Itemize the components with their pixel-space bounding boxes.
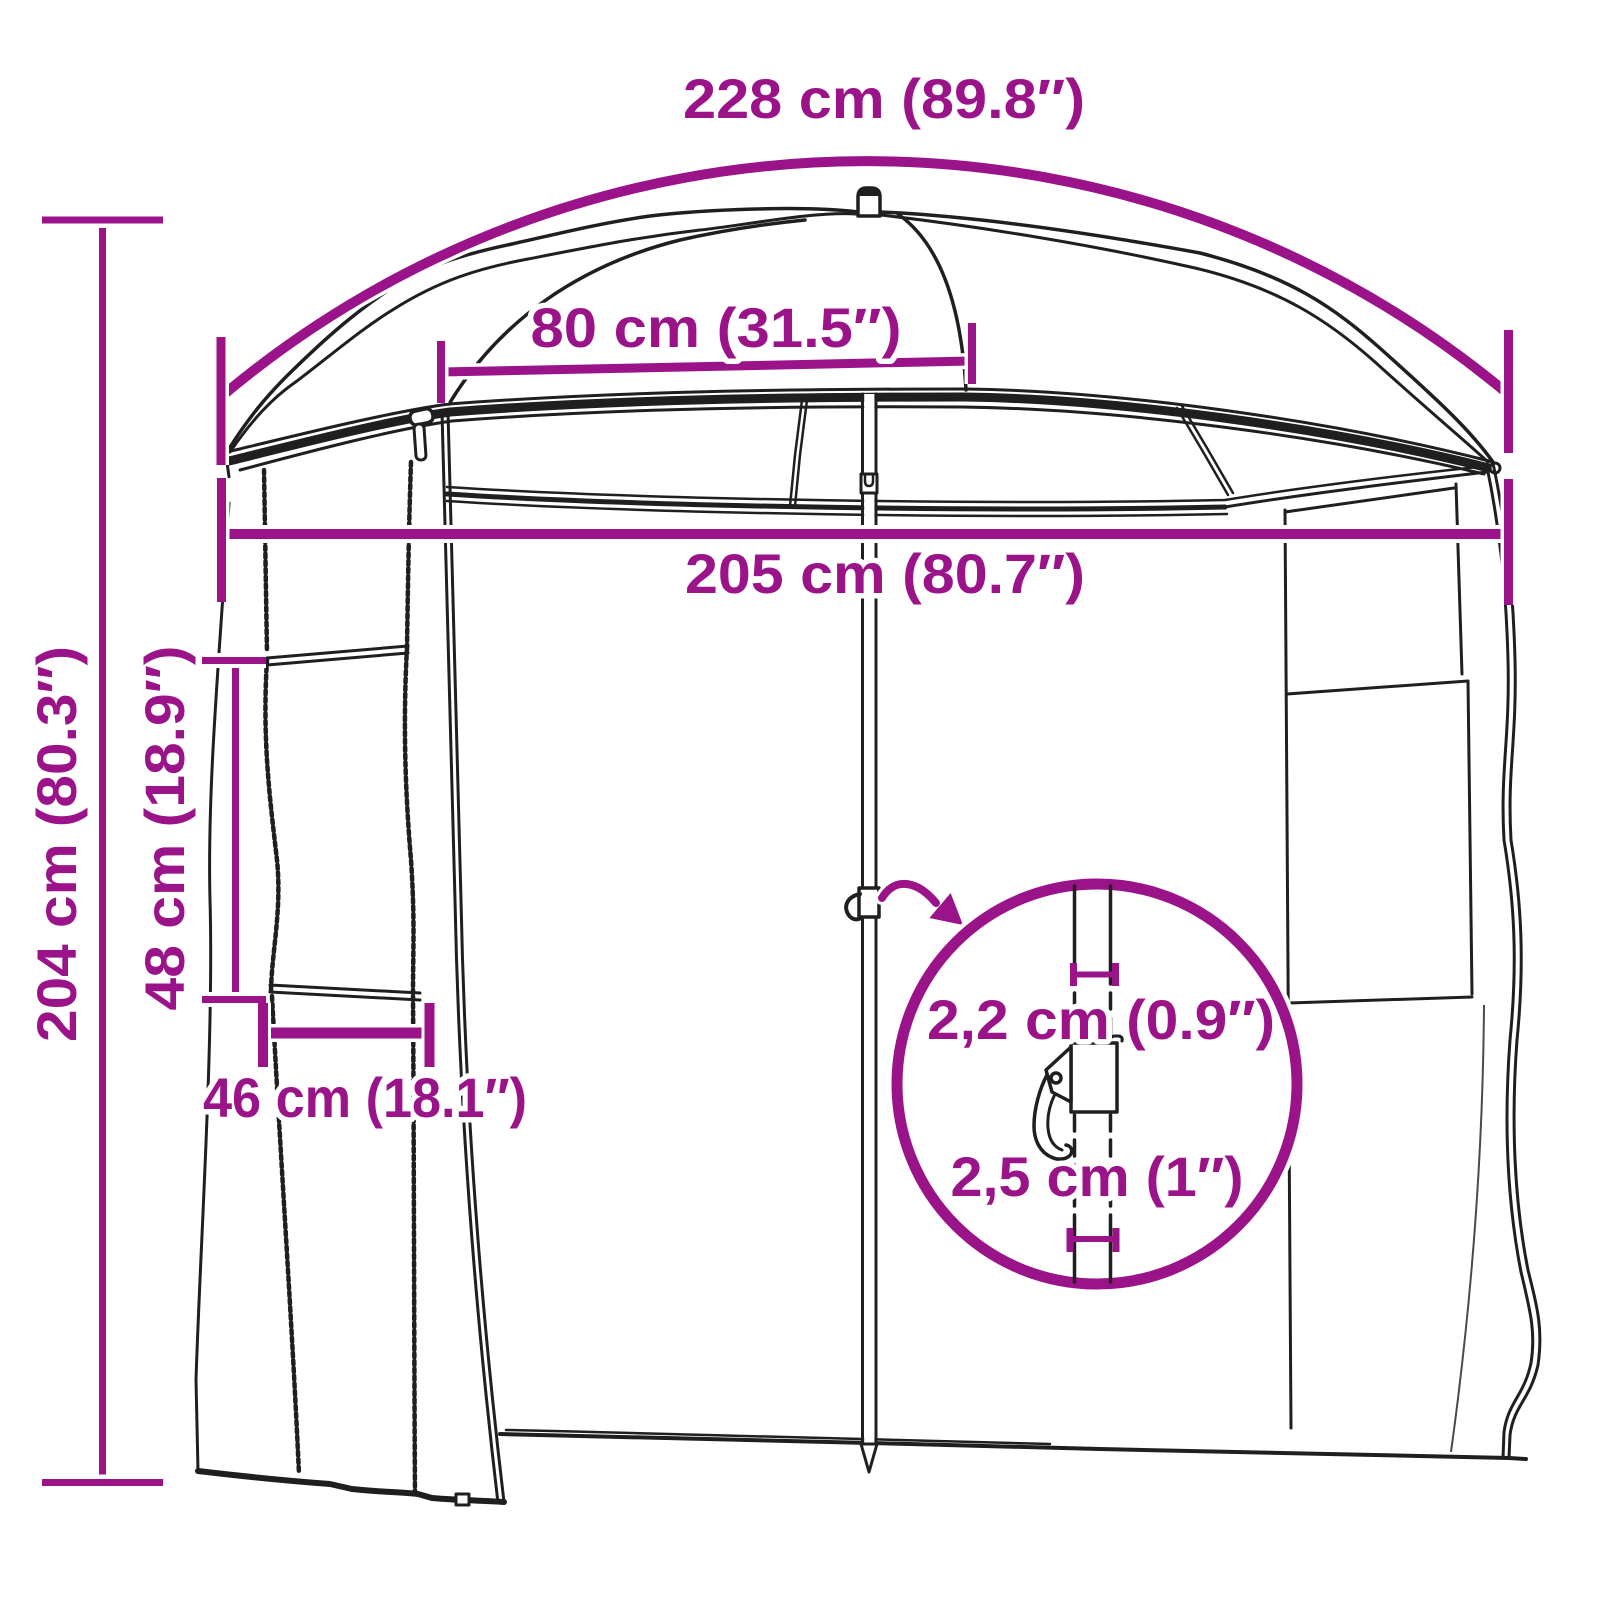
svg-text:2,5 cm (1″): 2,5 cm (1″) [951,1145,1244,1208]
svg-text:2,2 cm (0.9″): 2,2 cm (0.9″) [927,988,1275,1051]
svg-text:46 cm (18.1″): 46 cm (18.1″) [203,1066,527,1129]
svg-text:204 cm (80.3″): 204 cm (80.3″) [25,646,88,1042]
svg-text:228 cm (89.8″): 228 cm (89.8″) [683,67,1085,130]
svg-text:48 cm (18.9″): 48 cm (18.9″) [133,646,196,1011]
svg-text:205 cm (80.7″): 205 cm (80.7″) [685,542,1085,605]
svg-text:80 cm (31.5″): 80 cm (31.5″) [531,296,902,359]
